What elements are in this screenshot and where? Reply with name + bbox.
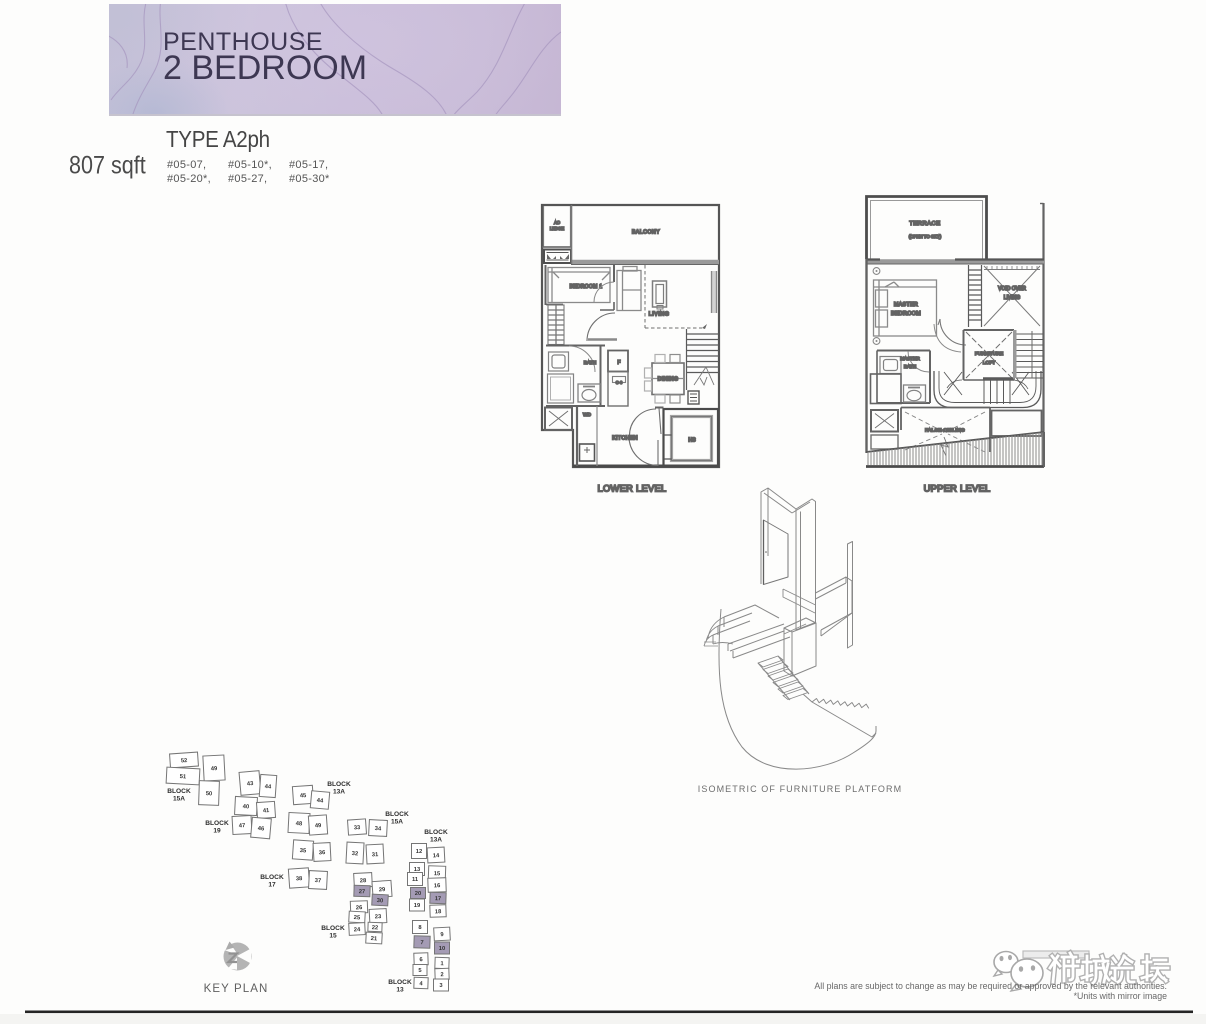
svg-text:22: 22 [372,925,379,931]
svg-text:BLOCK: BLOCK [424,829,448,836]
svg-text:14: 14 [433,853,441,859]
svg-text:20: 20 [415,891,421,897]
svg-text:BATH: BATH [904,364,916,369]
svg-text:13: 13 [396,987,404,994]
svg-text:15A: 15A [391,819,403,826]
svg-text:15A: 15A [173,796,185,803]
svg-text:FALSE CEILING: FALSE CEILING [925,428,965,434]
svg-text:BATH: BATH [584,360,597,366]
svg-text:BLOCK: BLOCK [327,781,351,788]
svg-text:11: 11 [412,877,419,883]
svg-text:10: 10 [439,946,445,952]
svg-text:BLOCK: BLOCK [321,925,345,932]
svg-text:ISOMETRIC OF FURNITURE PLATFOR: ISOMETRIC OF FURNITURE PLATFORM [698,784,902,794]
svg-text:26: 26 [356,905,363,911]
svg-text:48: 48 [296,821,304,827]
svg-text:HS: HS [688,438,696,444]
svg-text:35: 35 [299,848,307,854]
svg-text:KEY PLAN: KEY PLAN [204,983,269,995]
svg-text:BLOCK: BLOCK [260,874,284,881]
svg-text:AC: AC [554,220,560,225]
svg-text:31: 31 [372,852,380,858]
svg-text:WD: WD [583,412,592,418]
svg-text:13A: 13A [333,789,345,796]
svg-text:*Units with mirror image: *Units with mirror image [1074,991,1167,1001]
svg-text:45: 45 [300,793,308,799]
svg-text:27: 27 [359,889,366,895]
svg-text:MASTER: MASTER [900,356,920,361]
svg-text:19: 19 [213,828,221,835]
svg-text:50: 50 [206,791,213,797]
svg-text:19: 19 [414,903,421,909]
svg-text:24: 24 [354,927,362,933]
svg-text:F: F [617,360,620,366]
svg-text:51: 51 [180,774,188,780]
svg-text:33: 33 [354,825,362,831]
svg-text:(OPEN TO SKY): (OPEN TO SKY) [909,234,942,239]
svg-text:BLOCK: BLOCK [388,979,412,986]
svg-text:KITCHEN: KITCHEN [612,436,638,442]
svg-text:41: 41 [263,808,271,814]
svg-text:BALCONY: BALCONY [632,230,660,236]
svg-text:49: 49 [211,766,219,772]
svg-text:BLOCK: BLOCK [385,811,409,818]
svg-text:28: 28 [360,878,368,884]
svg-text:17: 17 [435,896,442,902]
svg-text:BEDROOM 1: BEDROOM 1 [570,284,603,290]
svg-text:LEDGE: LEDGE [550,226,564,231]
svg-text:15: 15 [329,933,337,940]
svg-text:BLOCK: BLOCK [167,788,191,795]
svg-text:LIVING: LIVING [649,312,670,318]
svg-text:BEDROOM: BEDROOM [891,311,921,317]
svg-text:MASTER: MASTER [894,302,918,308]
svg-text:49: 49 [315,823,323,829]
svg-text:VOID OVER: VOID OVER [998,286,1026,292]
svg-text:23: 23 [375,914,383,920]
svg-text:32: 32 [352,851,359,857]
svg-text:29: 29 [379,887,387,893]
svg-text:38: 38 [296,876,304,882]
svg-text:30: 30 [377,898,384,904]
svg-text:All plans are subject to chang: All plans are subject to change as may b… [814,981,1167,991]
svg-text:47: 47 [239,823,246,829]
svg-text:34: 34 [375,826,383,832]
svg-text:21: 21 [371,936,379,942]
svg-text:TERRACE: TERRACE [909,221,940,227]
svg-text:12: 12 [416,849,422,855]
svg-text:13A: 13A [430,837,442,844]
svg-text:18: 18 [435,909,442,915]
svg-text:UPPER LEVEL: UPPER LEVEL [924,484,991,494]
svg-text:44: 44 [264,784,272,790]
svg-text:16: 16 [434,883,441,889]
svg-text:LOWER LEVEL: LOWER LEVEL [598,484,667,494]
svg-text:15: 15 [434,871,441,877]
svg-text:25: 25 [354,915,362,921]
svg-text:37: 37 [315,878,322,884]
svg-text:2: 2 [440,972,443,978]
svg-text:LIVING: LIVING [1004,295,1021,301]
svg-text:DINING: DINING [658,377,679,383]
svg-text:LOFT: LOFT [983,360,996,366]
svg-text:FURNITURE: FURNITURE [975,351,1004,357]
svg-text:36: 36 [319,850,327,856]
svg-text:7: 7 [420,940,423,946]
svg-text:17: 17 [268,882,276,889]
svg-text:40: 40 [243,804,250,810]
svg-text:52: 52 [181,758,188,764]
svg-text:C-3: C-3 [616,380,623,385]
svg-text:BLOCK: BLOCK [205,820,229,827]
